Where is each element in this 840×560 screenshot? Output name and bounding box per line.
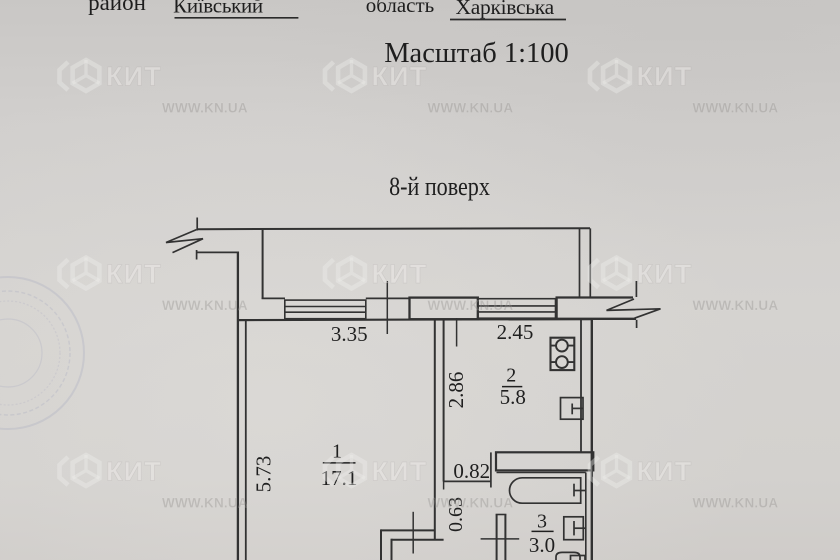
svg-text:область: область (366, 0, 435, 17)
svg-text:Київський: Київський (173, 0, 263, 18)
svg-text:8-й поверх: 8-й поверх (389, 173, 490, 201)
svg-text:2: 2 (506, 365, 516, 387)
svg-text:5.8: 5.8 (500, 385, 526, 409)
svg-text:Харківська: Харківська (456, 0, 555, 19)
svg-text:район: район (88, 0, 146, 15)
svg-text:3.0: 3.0 (529, 533, 555, 557)
svg-text:3: 3 (537, 511, 547, 533)
svg-text:2.45: 2.45 (497, 320, 534, 344)
svg-text:2.86: 2.86 (444, 372, 468, 409)
svg-text:3.35: 3.35 (331, 322, 368, 346)
svg-text:0.82: 0.82 (453, 459, 490, 483)
svg-text:5.73: 5.73 (252, 456, 276, 493)
